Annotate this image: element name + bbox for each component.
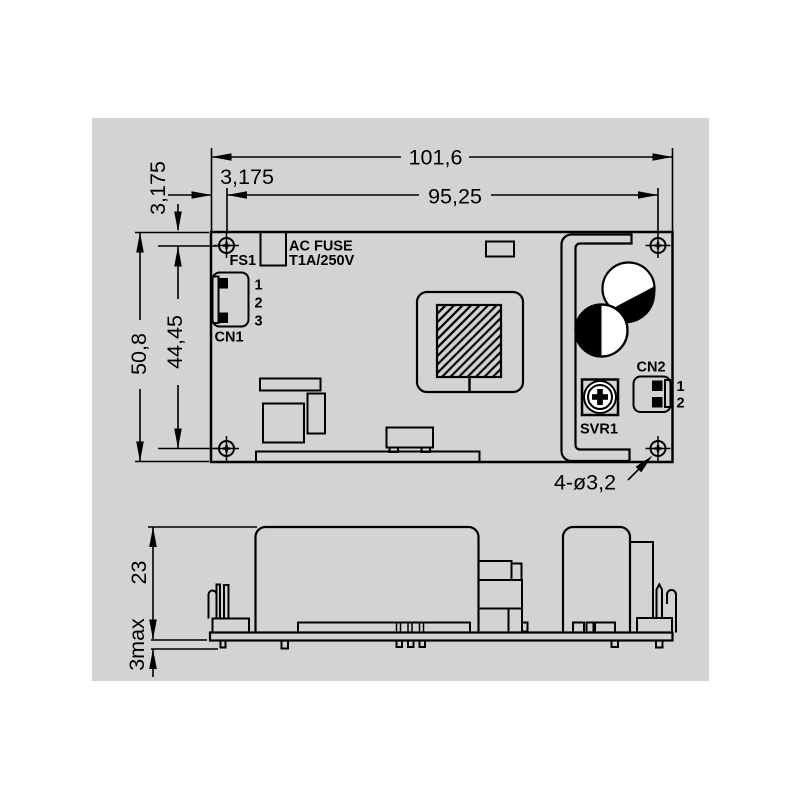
side-dim-height-label: 23	[127, 561, 151, 585]
cn1-ref-label: CN1	[215, 330, 244, 346]
svr-ref-label: SVR1	[580, 422, 618, 438]
transformer-core-hatched	[437, 305, 501, 377]
screw-slot-v	[597, 389, 603, 405]
side-dim-pin-protrusion-label: 3max	[125, 618, 149, 671]
dim-offset-h-label: 3,175	[220, 165, 274, 189]
cn1-pin-3-label: 3	[255, 314, 263, 330]
cn2-ref-label: CN2	[637, 360, 666, 376]
cn1-pin-1-label: 1	[255, 278, 263, 294]
psu-dimension-diagram: 101,6 95,25 3,175 3,175 50,8 44,45 4-ø3,…	[0, 0, 800, 800]
cn2-pin-1-label: 1	[677, 379, 685, 395]
technical-drawing-page: 101,6 95,25 3,175 3,175 50,8 44,45 4-ø3,…	[0, 0, 800, 800]
dim-holes-note-label: 4-ø3,2	[554, 471, 616, 495]
dim-offset-v-label: 3,175	[146, 161, 170, 215]
cn2-pin-mark-1	[653, 382, 662, 391]
dim-hole-span-h-label: 95,25	[428, 185, 482, 209]
dim-height-label: 50,8	[127, 333, 151, 375]
capacitor-2	[576, 305, 628, 357]
fuse-rating-line2: T1A/250V	[289, 253, 355, 269]
cn2-pin-2-label: 2	[677, 396, 685, 412]
cn1-pin-mark-3	[219, 314, 227, 323]
fuse-ref-label: FS1	[230, 253, 257, 269]
cn2-pin-mark-2	[653, 398, 662, 407]
dim-width-label: 101,6	[409, 146, 463, 170]
cn1-pin-2-label: 2	[255, 296, 263, 312]
cn1-pin-mark-1	[219, 279, 227, 288]
dim-hole-span-v-label: 44,45	[163, 315, 187, 369]
